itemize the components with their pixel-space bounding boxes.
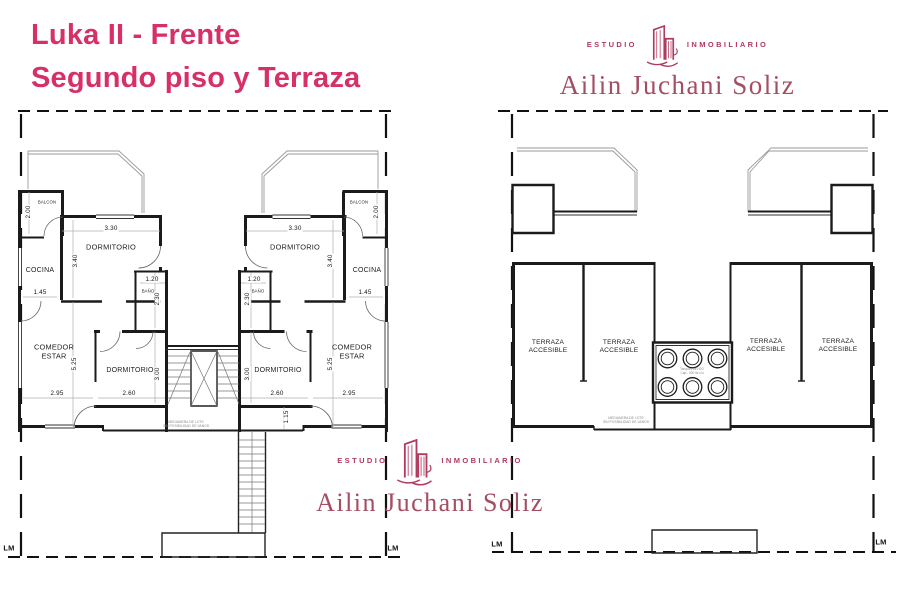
buildings-icon [394, 434, 434, 486]
dim-1-15: 1.15 [284, 409, 290, 424]
dim-3-40: 3.40 [73, 253, 79, 268]
brand-logo-top: ESTUDIO INMOBILIARIO Ailin Juchani Soliz [545, 20, 810, 101]
lot-boundary-label: LM [875, 539, 886, 548]
dim-2-30: 2.30 [155, 291, 161, 306]
dim-2-95: 2.95 [49, 391, 64, 397]
brand-word-estudio: ESTUDIO [337, 456, 387, 465]
brand-word-inmobiliario: INMOBILIARIO [441, 456, 522, 465]
room-label-bano: BAÑO [142, 288, 155, 293]
flyer-canvas: Luka II - Frente Segundo piso y Terraza … [0, 0, 900, 600]
dim-1-20: 1.20 [246, 277, 261, 283]
room-label-terraza-accesible: TERRAZA ACCESIBLE [747, 338, 786, 354]
room-label-terraza-accesible: TERRAZA ACCESIBLE [529, 339, 568, 355]
room-label-cocina: COCINA [353, 267, 381, 275]
room-label-comedor-estar: COMEDOR ESTAR [34, 343, 74, 360]
lot-boundary-label: LM [387, 545, 398, 554]
buildings-icon [644, 20, 680, 68]
dim-3-40: 3.40 [328, 253, 334, 268]
brand-owner-name: Ailin Juchani Soliz [545, 70, 810, 101]
dim-1-45: 1.45 [32, 290, 47, 296]
room-label-terraza-accesible: TERRAZA ACCESIBLE [600, 339, 639, 355]
room-label-dormitorio: DORMITORIO [254, 367, 301, 375]
lot-boundary-label: LM [3, 545, 14, 554]
title-line-2: Segundo piso y Terraza [31, 57, 360, 100]
dim-1-20: 1.20 [144, 277, 159, 283]
brand-logo-bottom: ESTUDIO INMOBILIARIO Ailin Juchani Soliz [300, 434, 560, 518]
dim-2-60: 2.60 [269, 391, 284, 397]
room-label-balcon: BALCON [38, 199, 56, 204]
dim-5-25: 5.25 [72, 356, 78, 371]
brand-word-inmobiliario: INMOBILIARIO [687, 40, 768, 49]
page-title: Luka II - Frente Segundo piso y Terraza [31, 14, 360, 100]
dim-3-00: 3.00 [245, 366, 251, 381]
dim-2-95: 2.95 [341, 391, 356, 397]
dim-1-45: 1.45 [357, 290, 372, 296]
room-label-terraza-accesible: TERRAZA ACCESIBLE [819, 338, 858, 354]
plan-note: MEDIANERA DE LOTE SIN POSIBILIDAD DE VAN… [603, 416, 649, 425]
room-label-balcon: BALCON [350, 199, 368, 204]
room-label-dormitorio: DORMITORIO [86, 244, 136, 253]
plan-note: MEDIANERA DE LOTE SIN POSIBILIDAD DE VAN… [163, 420, 209, 429]
tank-note: Tanques de H2O Cap.: 500 lts c/u [680, 367, 704, 375]
lot-boundary-label: LM [491, 541, 502, 550]
dim-3-00: 3.00 [155, 366, 161, 381]
dim-2-30: 2.30 [245, 291, 251, 306]
room-label-dormitorio: DORMITORIO [106, 367, 153, 375]
dim-5-25: 5.25 [328, 356, 334, 371]
dim-3-30: 3.30 [103, 226, 118, 232]
dim-2-00: 2.00 [374, 204, 380, 219]
room-label-bano: BAÑO [252, 288, 265, 293]
room-label-cocina: COCINA [26, 267, 54, 275]
room-label-comedor-estar: COMEDOR ESTAR [332, 343, 372, 360]
room-label-dormitorio: DORMITORIO [270, 244, 320, 253]
title-line-1: Luka II - Frente [31, 14, 360, 57]
dim-3-30: 3.30 [287, 226, 302, 232]
brand-word-estudio: ESTUDIO [587, 40, 637, 49]
dim-2-60: 2.60 [121, 391, 136, 397]
brand-owner-name: Ailin Juchani Soliz [300, 488, 560, 518]
dim-2-00: 2.00 [26, 204, 32, 219]
